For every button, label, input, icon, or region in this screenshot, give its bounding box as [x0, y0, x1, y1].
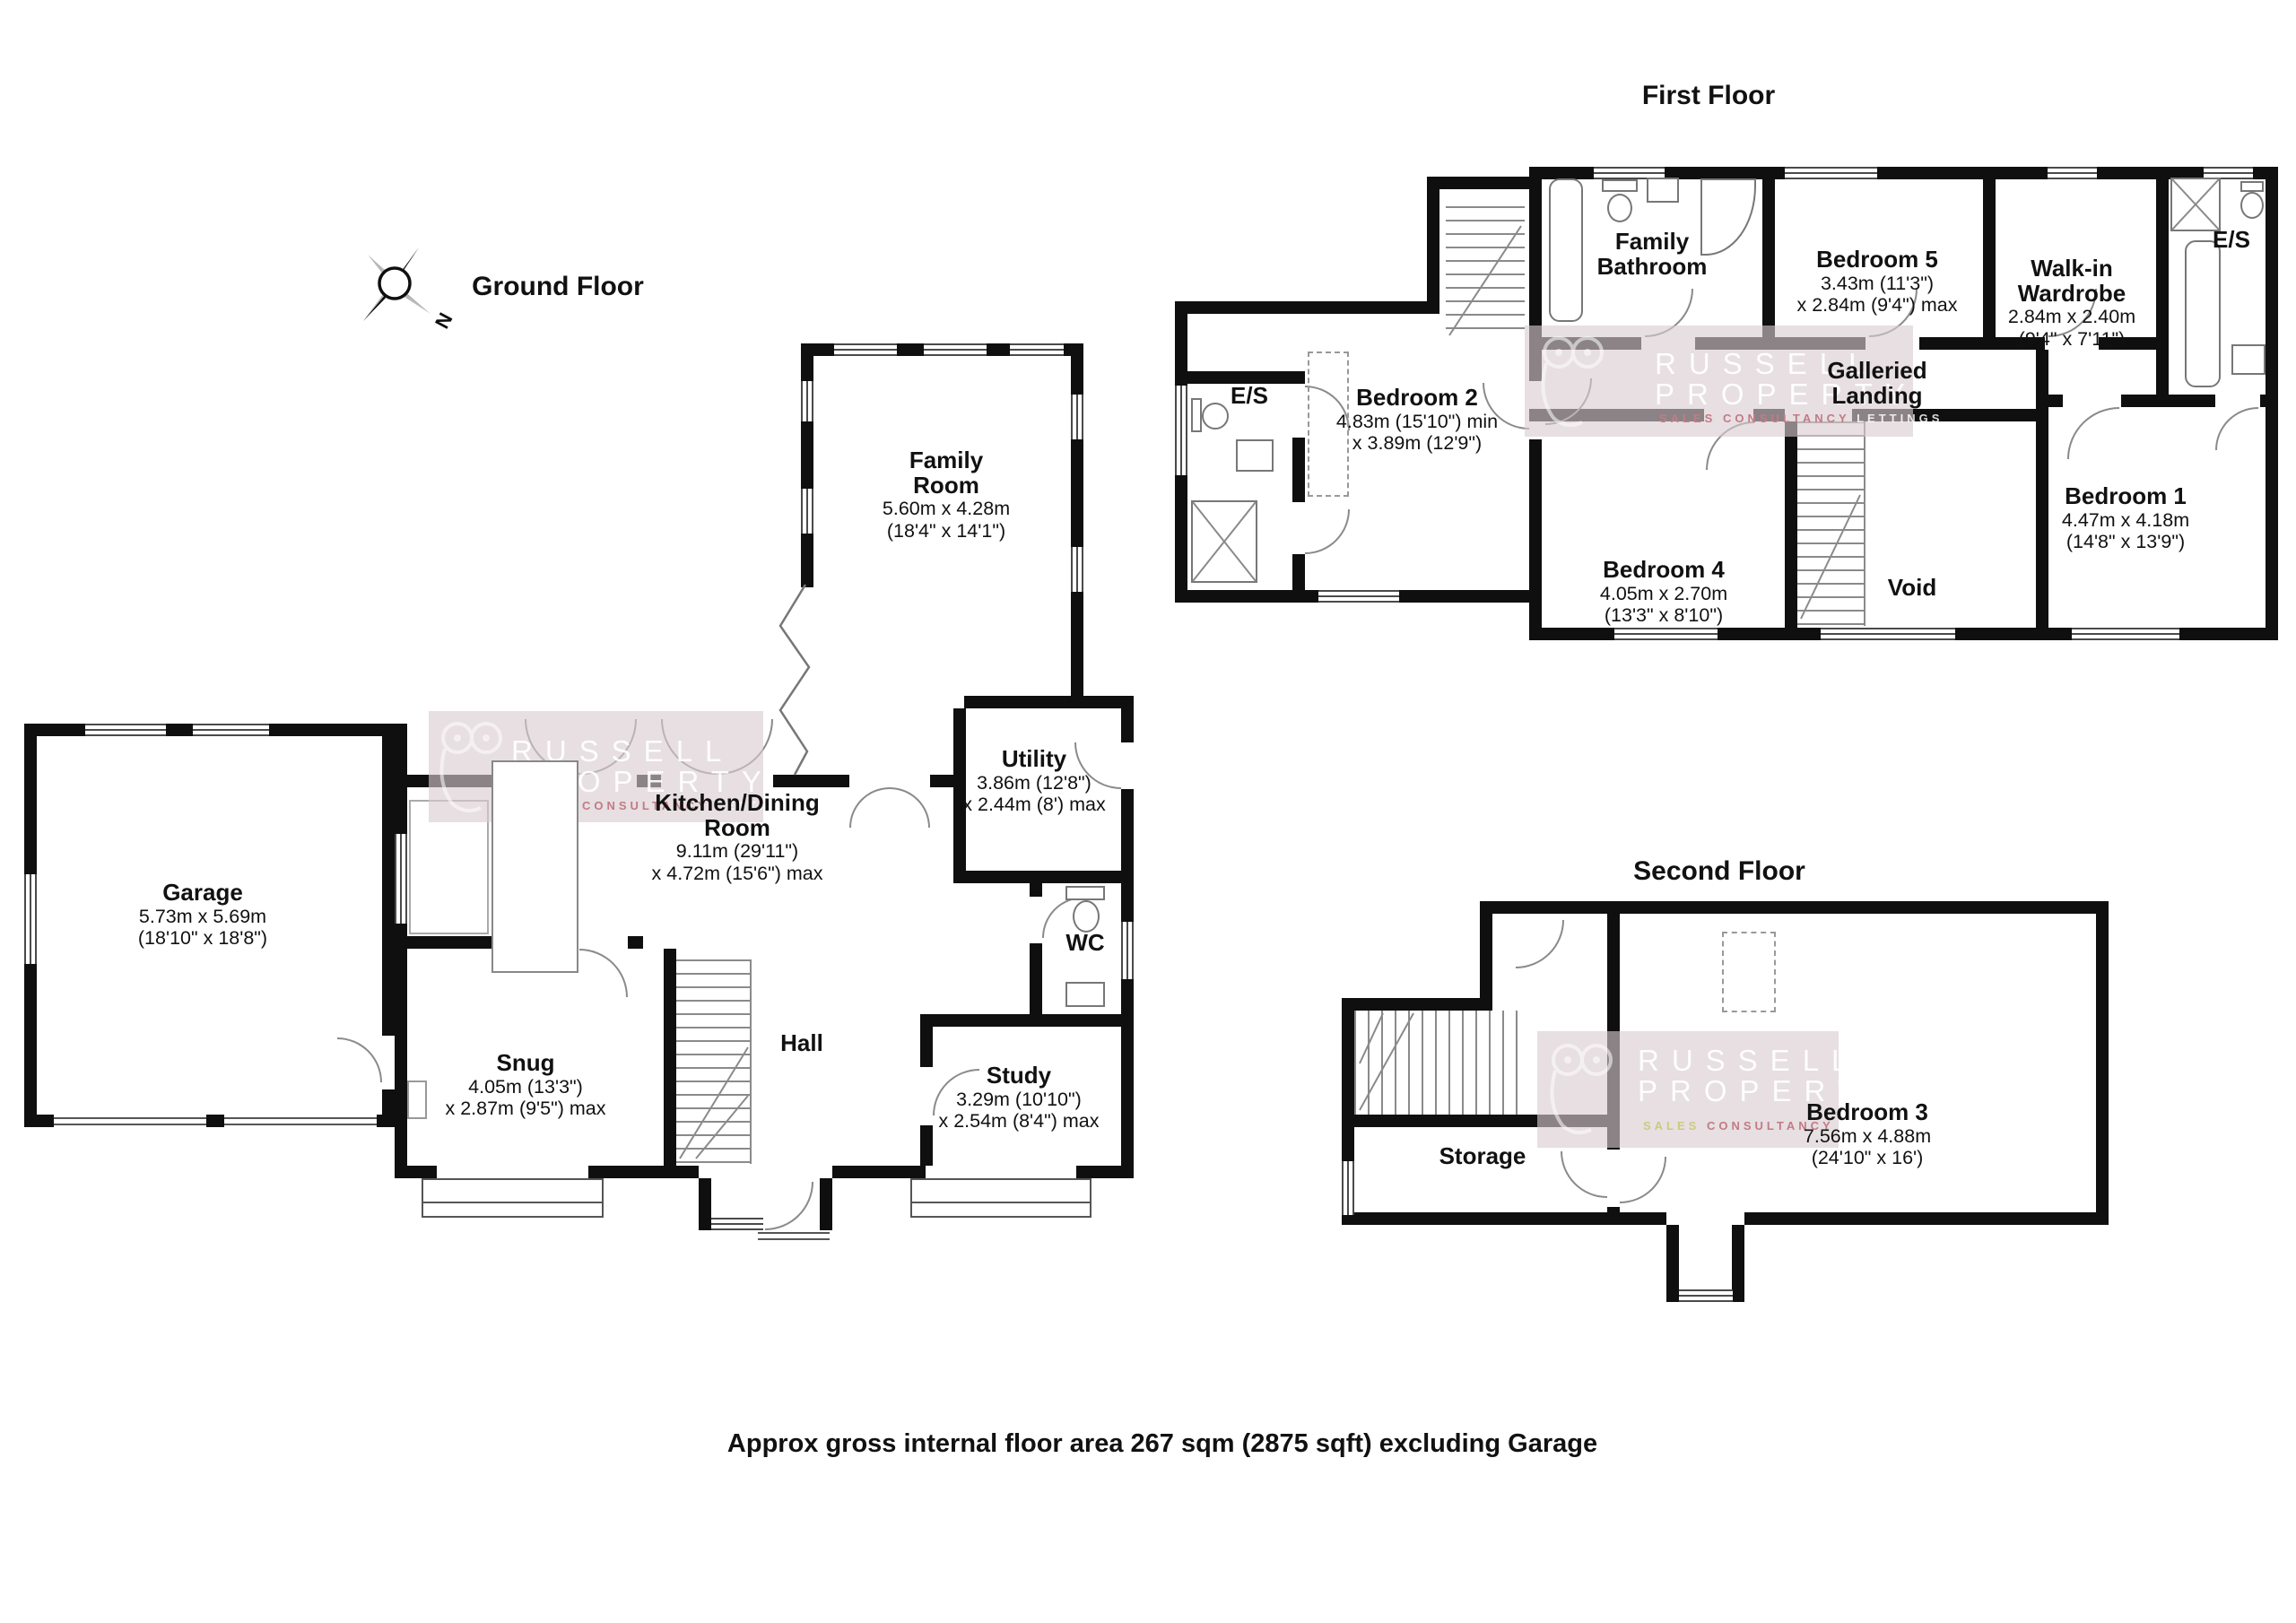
room-label-utility: Utility 3.86m (12'8") x 2.44m (8') max — [962, 747, 1105, 816]
watermark-brand: RUSSELL — [1638, 1046, 1860, 1075]
room-label-bedroom-5: Bedroom 5 3.43m (11'3") x 2.84m (9'4") m… — [1796, 247, 1957, 317]
room-label-void: Void — [1888, 576, 1936, 601]
room-label-hall: Hall — [780, 1031, 823, 1056]
room-label-bedroom-4: Bedroom 4 4.05m x 2.70m (13'3" x 8'10") — [1600, 558, 1727, 627]
room-label-garage: Garage 5.73m x 5.69m (18'10" x 18'8") — [138, 881, 267, 950]
ground-floor-heading: Ground Floor — [472, 272, 644, 302]
room-label-kitchen-dining: Kitchen/Dining Room 9.11m (29'11") x 4.7… — [652, 791, 823, 884]
owl-logo-icon — [1535, 333, 1609, 430]
detail-lines — [0, 0, 2296, 1623]
room-label-family-bathroom: Family Bathroom — [1597, 230, 1708, 279]
room-label-bedroom-3: Bedroom 3 7.56m x 4.88m (24'10" x 16') — [1804, 1100, 1931, 1169]
floor-area-note: Approx gross internal floor area 267 sqm… — [727, 1429, 1597, 1459]
watermark-tagline: SALES CONSULTANCY LETTINGS — [1659, 412, 1943, 425]
first-floor-heading: First Floor — [1642, 81, 1775, 111]
room-label-study: Study 3.29m (10'10") x 2.54m (8'4") max — [938, 1063, 1099, 1133]
room-label-snug: Snug 4.05m (13'3") x 2.87m (9'5") max — [445, 1051, 605, 1120]
room-label-galleried-landing: Galleried Landing — [1827, 359, 1926, 408]
open-wall-zigzag — [780, 585, 809, 775]
room-label-bedroom-2: Bedroom 2 4.83m (15'10") min x 3.89m (12… — [1336, 386, 1498, 455]
room-label-storage: Storage — [1439, 1144, 1526, 1169]
room-label-wc: WC — [1065, 931, 1104, 956]
floorplan-page: Ground Floor First Floor Second Floor Ap… — [0, 0, 2296, 1623]
room-label-es-right: E/S — [2213, 228, 2250, 253]
second-floor-heading: Second Floor — [1633, 856, 1805, 887]
room-label-bedroom-1: Bedroom 1 4.47m x 4.18m (14'8" x 13'9") — [2062, 484, 2189, 553]
watermark-band: RUSSELL PROPERTY SALES CONSULTANCY LETTI… — [1537, 1031, 1839, 1148]
room-label-walk-in-wardrobe: Walk-in Wardrobe 2.84m x 2.40m (9'4" x 7… — [2008, 256, 2135, 350]
room-label-family-room: Family Room 5.60m x 4.28m (18'4" x 14'1"… — [883, 448, 1010, 542]
kitchen-island — [491, 760, 578, 973]
room-label-es-left: E/S — [1231, 384, 1268, 409]
owl-logo-icon — [1544, 1040, 1618, 1137]
